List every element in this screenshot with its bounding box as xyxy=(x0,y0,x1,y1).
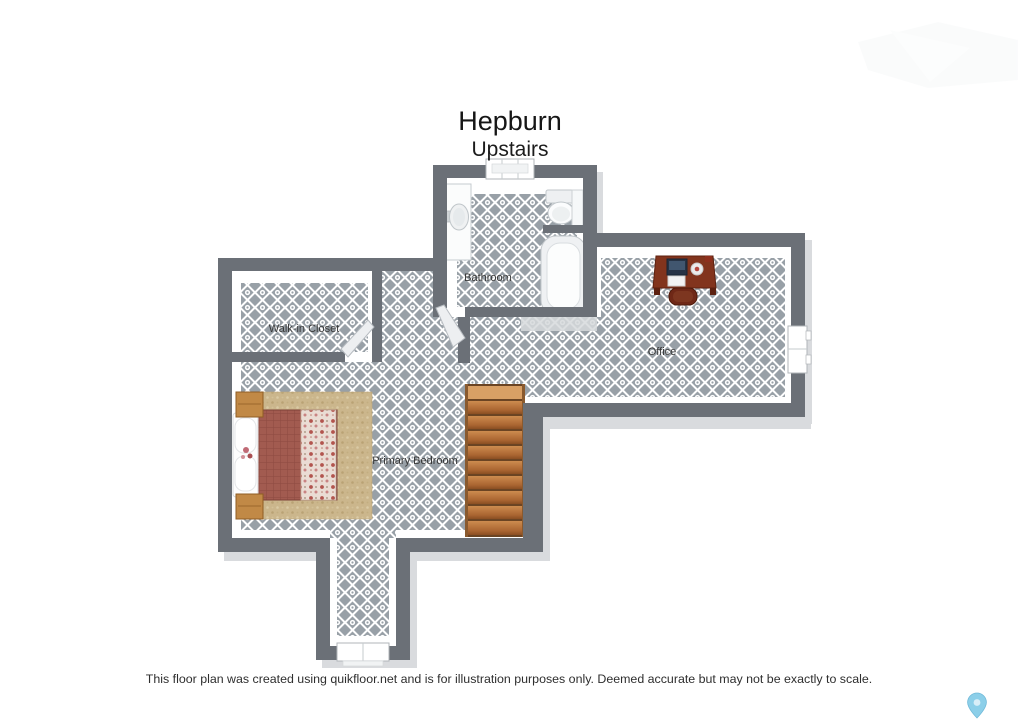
bathroom-top-window xyxy=(486,159,534,179)
room-label-primary-bedroom: Primary Bedroom xyxy=(372,455,458,467)
nightstand-top xyxy=(236,392,263,417)
room-label-walk-in-closet: Walk-in Closet xyxy=(269,323,340,335)
floor-plan-canvas: Bathroom Walk-in Closet Office Primary B… xyxy=(0,0,1018,720)
bedroom-furniture xyxy=(233,392,372,519)
corridor-bottom-window xyxy=(337,643,389,666)
plan-title: Hepburn xyxy=(458,106,562,136)
papers xyxy=(668,276,685,286)
plan-header: Hepburn Upstairs xyxy=(458,106,562,161)
watermark xyxy=(858,22,1018,88)
staircase xyxy=(465,384,525,537)
vanity-sink xyxy=(446,184,471,260)
desk-accessory xyxy=(705,256,712,262)
double-bed xyxy=(233,410,337,500)
desk-chair xyxy=(669,288,697,305)
room-label-office: Office xyxy=(648,346,677,358)
location-pin-icon[interactable] xyxy=(968,693,987,718)
bathtub xyxy=(541,236,586,315)
laptop xyxy=(667,259,687,275)
bathroom-block-shadow xyxy=(521,317,597,331)
pillow xyxy=(235,456,256,491)
plan-subtitle: Upstairs xyxy=(471,138,548,161)
plate xyxy=(691,263,703,275)
nightstand-bottom xyxy=(236,494,263,519)
disclaimer-text: This floor plan was created using quikfl… xyxy=(146,672,872,686)
bed-runner xyxy=(301,410,336,500)
floor-plan-page: Bathroom Walk-in Closet Office Primary B… xyxy=(0,0,1018,720)
storage-cabinet xyxy=(572,190,583,227)
room-label-bathroom: Bathroom xyxy=(464,272,512,284)
